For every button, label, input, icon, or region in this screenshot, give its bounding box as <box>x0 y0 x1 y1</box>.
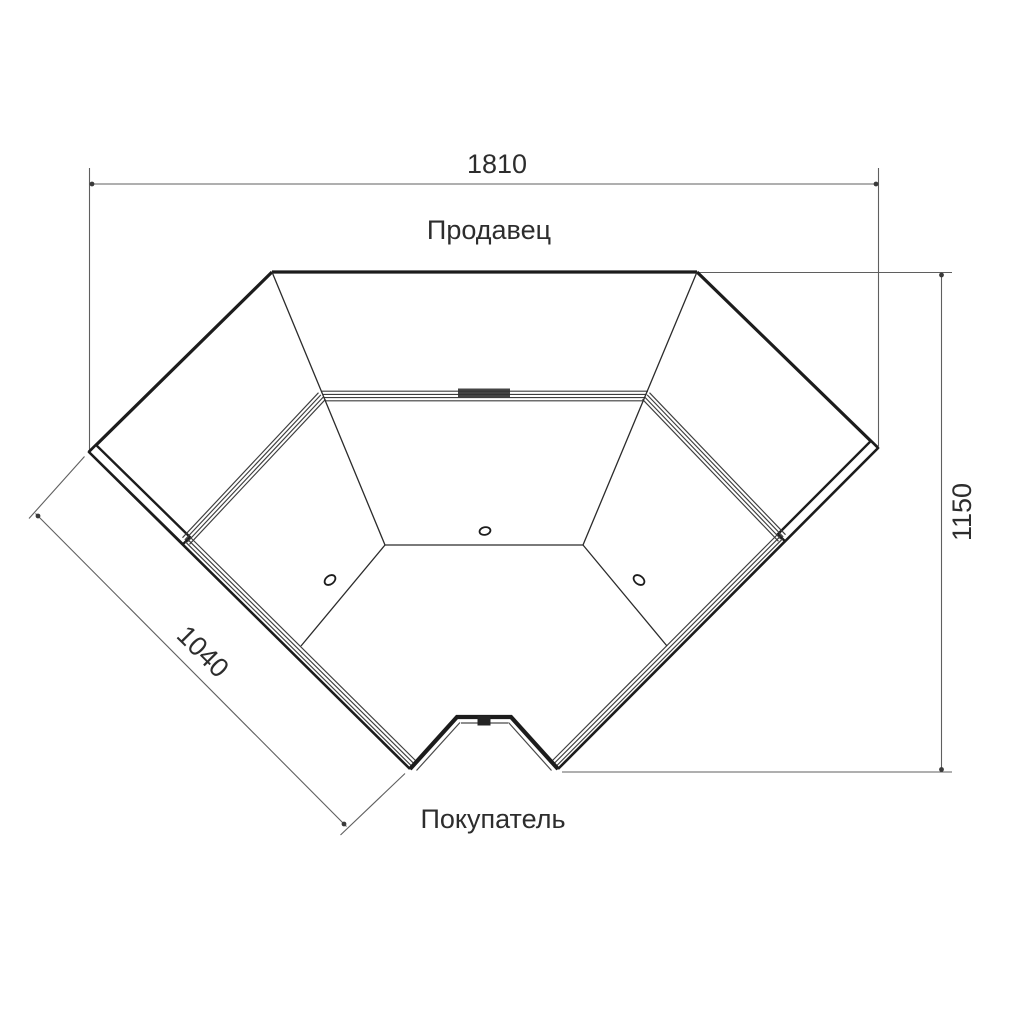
extension-line-left-corner <box>29 457 85 519</box>
notch-center-tab <box>478 716 491 726</box>
seam-right <box>583 272 697 545</box>
back-edge-right <box>697 272 878 448</box>
glass-frame-strips-group <box>183 391 786 767</box>
corner-counter-plan-drawing: 1810 1150 1040 Продавец Покупатель <box>0 0 1024 1024</box>
dimension-label-left-depth: 1040 <box>171 620 235 684</box>
dim-dot <box>342 822 347 827</box>
back-strip-center-block <box>458 389 510 398</box>
dim-dot <box>90 182 95 187</box>
extension-line-notch-left <box>341 774 406 836</box>
drain-hole-left <box>323 573 338 587</box>
right-end-glass-panel <box>778 441 878 541</box>
left-end-glass-panel <box>89 445 190 544</box>
front-notch-group <box>410 716 558 771</box>
drain-hole-center <box>479 526 491 536</box>
seam-left <box>272 272 385 545</box>
dim-dot <box>36 514 41 519</box>
dim-dot <box>874 182 879 187</box>
buyer-zone-label: Покупатель <box>420 804 565 834</box>
seller-zone-label: Продавец <box>427 215 551 245</box>
notch-inner-lines <box>417 723 552 771</box>
seam-front-left <box>301 545 385 646</box>
drain-hole-right <box>632 573 647 587</box>
dimension-label-top-width: 1810 <box>467 149 527 179</box>
seam-front-right <box>583 545 667 646</box>
dim-dot <box>939 273 944 278</box>
dimension-line-left-depth <box>36 514 347 827</box>
drain-holes-group <box>323 526 647 587</box>
dimension-label-right-height: 1150 <box>947 483 977 541</box>
counter-plan-page: 1810 1150 1040 Продавец Покупатель <box>0 0 1024 1024</box>
dim-dot <box>939 767 944 772</box>
back-edge-left <box>89 272 272 452</box>
deck-seam-lines-group <box>272 272 697 646</box>
